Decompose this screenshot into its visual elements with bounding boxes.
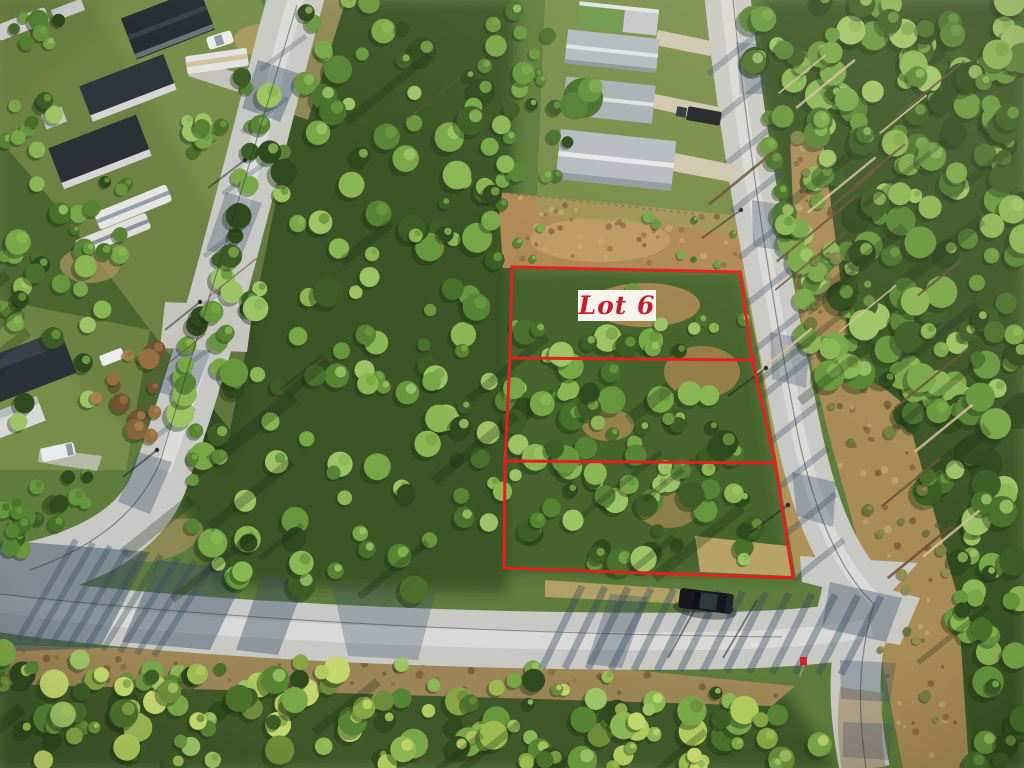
vignette-overlay — [0, 0, 1024, 768]
aerial-photo: Lot 6 — [0, 0, 1024, 768]
aerial-photo-canvas: Lot 6 — [0, 0, 1024, 768]
